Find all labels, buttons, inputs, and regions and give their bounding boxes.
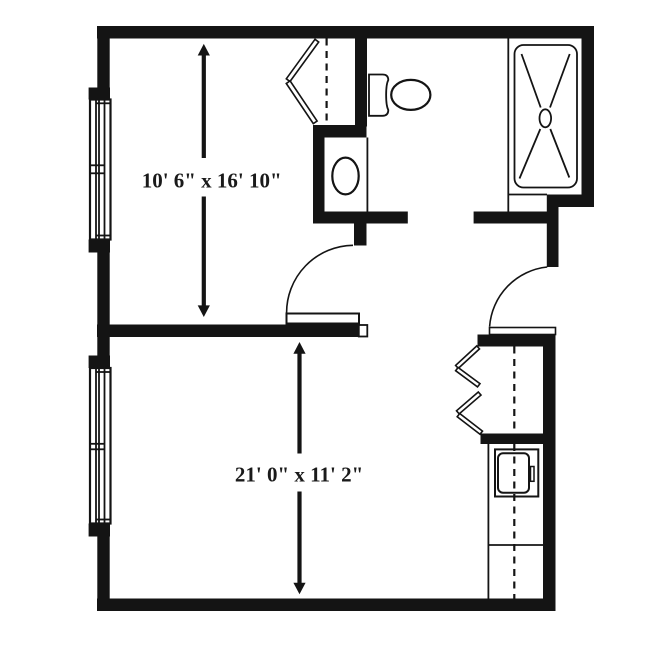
svg-text:21' 0" x 11' 2": 21' 0" x 11' 2" — [235, 462, 363, 486]
svg-text:10' 6" x 16' 10": 10' 6" x 16' 10" — [142, 169, 282, 193]
